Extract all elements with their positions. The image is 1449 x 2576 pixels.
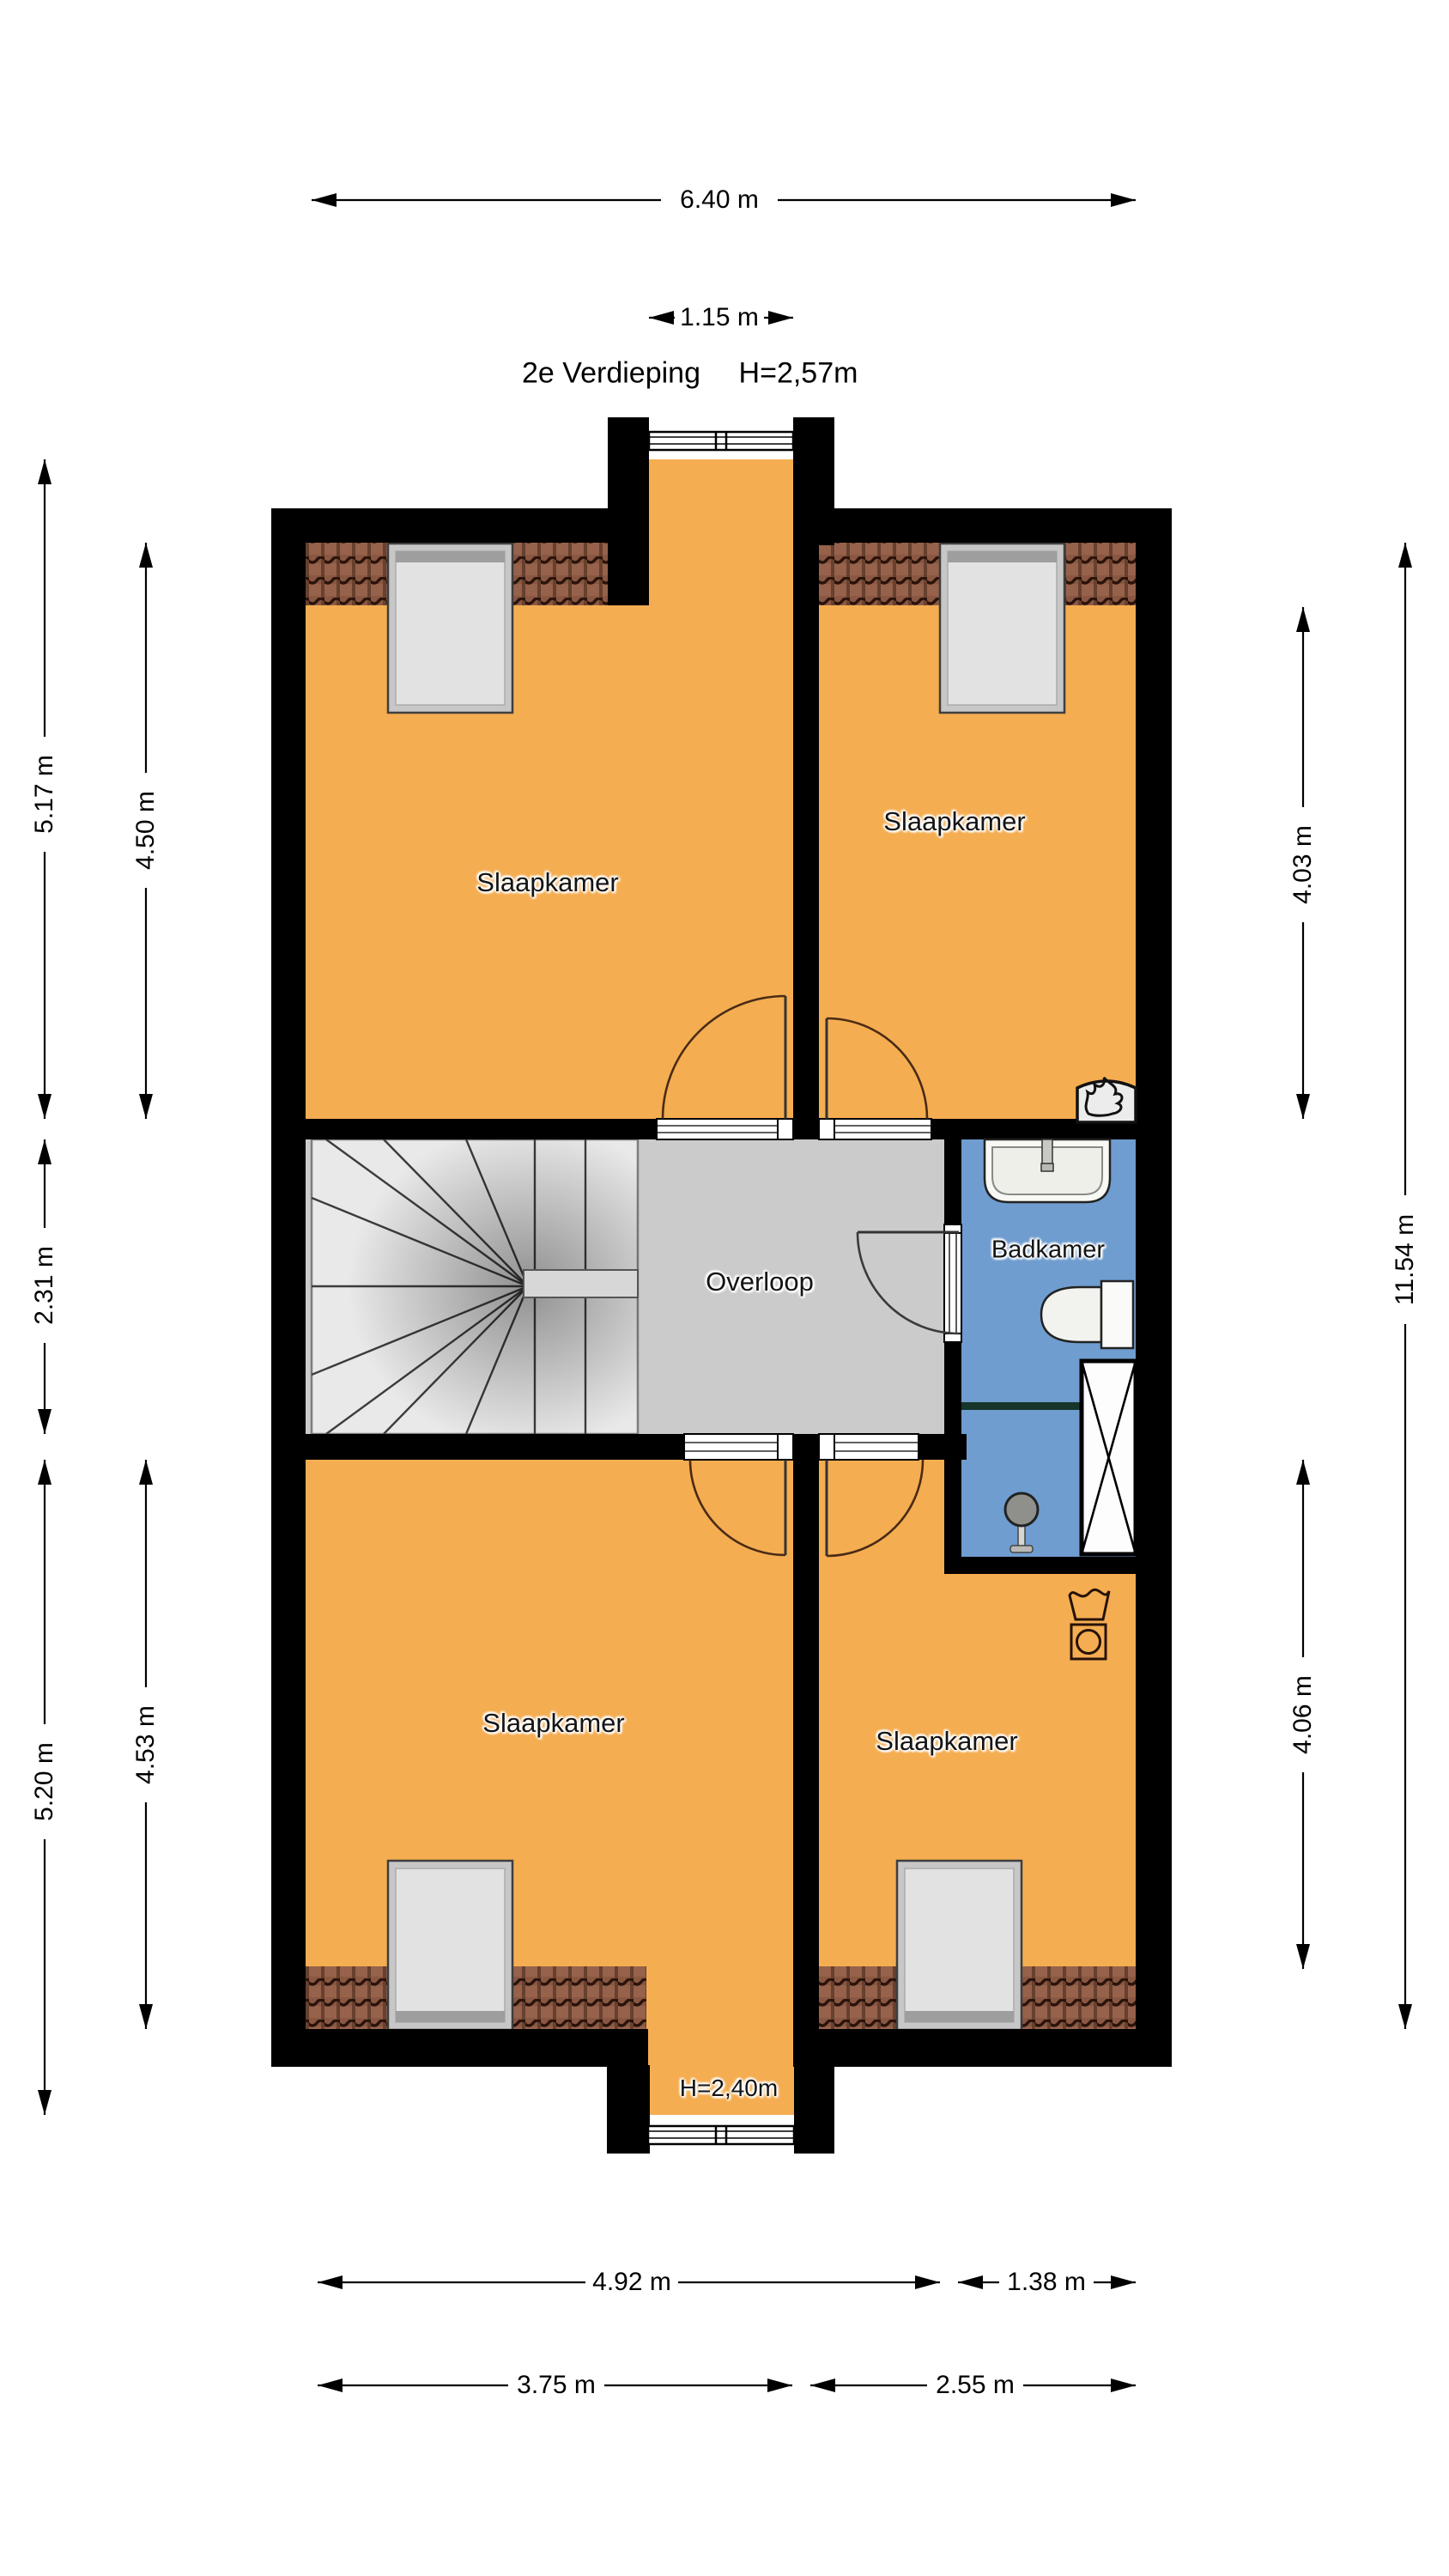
dim-bottom-outer-left: 4.92 m: [592, 2268, 671, 2297]
dim-bottom-inner-left: 3.75 m: [517, 2371, 596, 2400]
dim-right-inner-top: 4.03 m: [1288, 825, 1318, 904]
bottom-dormer-floor: [648, 2029, 794, 2115]
top-dormer-wall-right: [793, 417, 834, 545]
room-label-bedroom-bottom-left: Slaapkamer: [482, 1708, 624, 1739]
room-label-bedroom-top-right: Slaapkamer: [883, 806, 1025, 837]
bed: [388, 544, 512, 713]
bed: [940, 544, 1064, 713]
bedroom-top-left-floor: [306, 543, 793, 1119]
dim-left-inner-bottom: 4.53 m: [131, 1705, 161, 1784]
shower-partition: [961, 1402, 1084, 1410]
window: [649, 432, 793, 450]
dim-right-outer-full: 11.54 m: [1391, 1214, 1420, 1305]
dormer-height-label: H=2,40m: [680, 2075, 778, 2102]
dim-left-outer-middle: 2.31 m: [30, 1246, 59, 1325]
toilet: [1041, 1281, 1133, 1348]
washbasin: [985, 1139, 1110, 1202]
dim-bottom-inner-right: 2.55 m: [936, 2371, 1015, 2400]
dim-left-outer-bottom: 5.20 m: [30, 1742, 59, 1821]
room-label-bedroom-top-left: Slaapkamer: [476, 867, 618, 898]
bedroom-bottom-left-floor: [306, 1460, 793, 2029]
stair-handrail: [524, 1270, 638, 1297]
ceiling-height-label: H=2,57m: [739, 357, 858, 391]
dim-left-inner-top: 4.50 m: [131, 791, 161, 870]
floor-title: 2e Verdieping: [522, 357, 700, 391]
dim-left-outer-top: 5.17 m: [30, 755, 59, 834]
floorplan-page: 2e Verdieping H=2,57m 6.40 m 1.15 m 5.17…: [0, 0, 1449, 2576]
dim-right-inner-bottom: 4.06 m: [1288, 1675, 1318, 1754]
dim-bottom-outer-right: 1.38 m: [1007, 2268, 1086, 2297]
bed: [897, 1861, 1022, 2030]
top-dormer-wall-left: [608, 417, 649, 605]
window: [648, 2126, 794, 2144]
bottom-dormer-wall-left: [607, 2065, 650, 2154]
dim-overall-width: 6.40 m: [680, 185, 759, 215]
room-label-landing: Overloop: [706, 1267, 814, 1297]
dim-dormer-width: 1.15 m: [680, 303, 759, 332]
staircase-winder: [312, 1139, 638, 1434]
bottom-dormer-wall-right: [794, 2065, 834, 2154]
top-dormer-floor: [649, 459, 793, 545]
shaft-cross: [1082, 1361, 1136, 1554]
room-label-bathroom: Badkamer: [991, 1236, 1105, 1265]
faucet-icon: [1042, 1139, 1052, 1165]
bed: [388, 1861, 512, 2030]
boiler-flame-icon: [1077, 1078, 1136, 1122]
room-label-bedroom-bottom-right: Slaapkamer: [876, 1726, 1017, 1757]
